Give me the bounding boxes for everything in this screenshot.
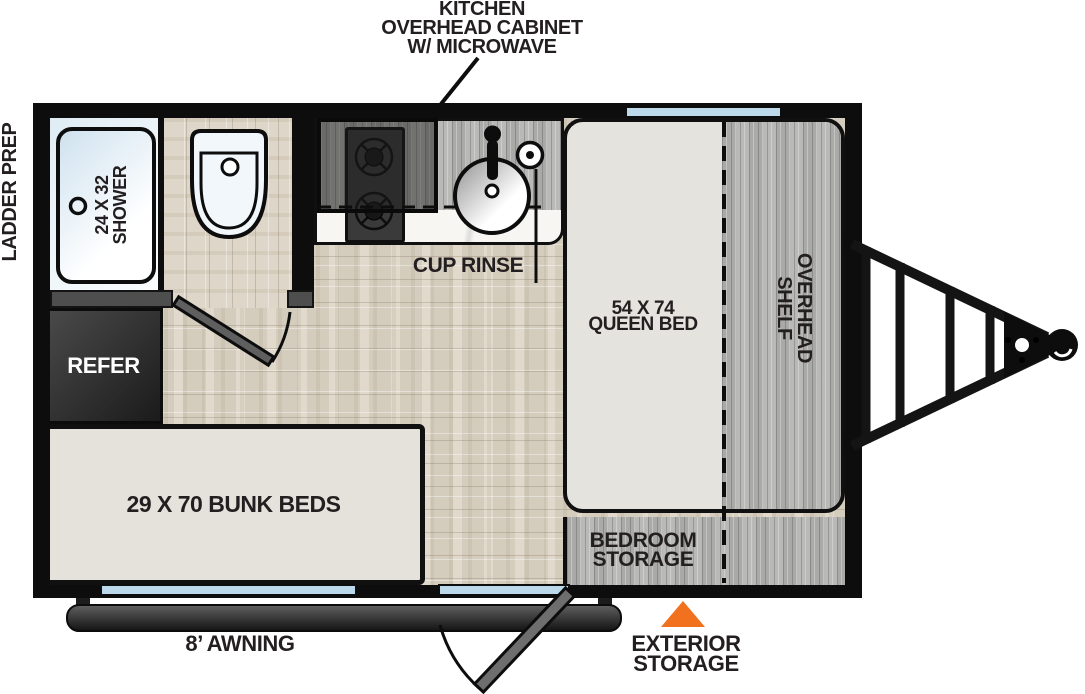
awning-bar bbox=[66, 604, 622, 632]
cup-rinse-label: CUP RINSE bbox=[398, 255, 538, 276]
bunk-beds: 29 X 70 BUNK BEDS bbox=[42, 424, 425, 585]
bathroom-kitchen-wall bbox=[292, 118, 314, 290]
ladder-prep-label: LADDER PREP bbox=[0, 112, 22, 272]
bunk-beds-label: 29 X 70 BUNK BEDS bbox=[127, 491, 341, 518]
exterior-storage-label: EXTERIOR STORAGE bbox=[606, 634, 766, 674]
refer-label: REFER bbox=[67, 353, 140, 379]
shower-label: 24 X 32 SHOWER bbox=[93, 145, 133, 265]
queen-bed-label: 54 X 74 QUEEN BED bbox=[563, 301, 723, 333]
window-bedroom bbox=[625, 106, 782, 118]
refrigerator: REFER bbox=[44, 308, 163, 424]
overhead-shelf-label: OVERHEAD SHELF bbox=[770, 243, 814, 373]
window-entry-door bbox=[438, 584, 570, 596]
shower-wall-divider bbox=[158, 118, 164, 290]
awning-label: 8’ AWNING bbox=[140, 633, 340, 655]
kitchen-overhead-cabinet-label: KITCHEN OVERHEAD CABINET W/ MICROWAVE bbox=[332, 0, 632, 57]
door-jamb-stub bbox=[287, 290, 314, 308]
wall-right bbox=[845, 103, 862, 598]
exterior-storage-arrow-icon bbox=[661, 601, 705, 627]
rv-floorplan: REFER 29 X 70 BUNK BEDS bbox=[0, 0, 1085, 694]
tongue-aframe-icon bbox=[844, 236, 1078, 454]
bathroom-floor bbox=[163, 118, 292, 308]
bedroom-storage-label: BEDROOM STORAGE bbox=[563, 531, 723, 569]
microwave-cabinet-overlay bbox=[317, 118, 438, 213]
window-bunk bbox=[100, 584, 357, 596]
bathroom-bottom-wall bbox=[50, 290, 173, 308]
coupler-icon bbox=[1004, 312, 1050, 378]
wall-left bbox=[33, 103, 50, 598]
jack-wheel-icon bbox=[1005, 336, 1039, 364]
